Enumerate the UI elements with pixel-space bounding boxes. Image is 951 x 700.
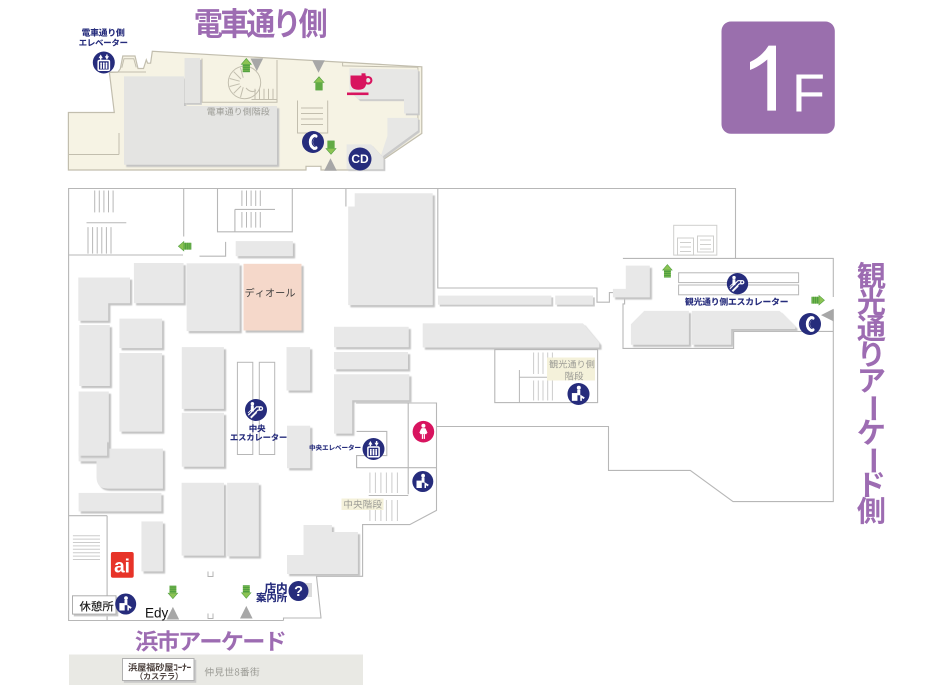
svg-text:F: F <box>792 64 825 124</box>
svg-text:ai: ai <box>114 557 130 578</box>
svg-text:Edy: Edy <box>145 606 169 621</box>
